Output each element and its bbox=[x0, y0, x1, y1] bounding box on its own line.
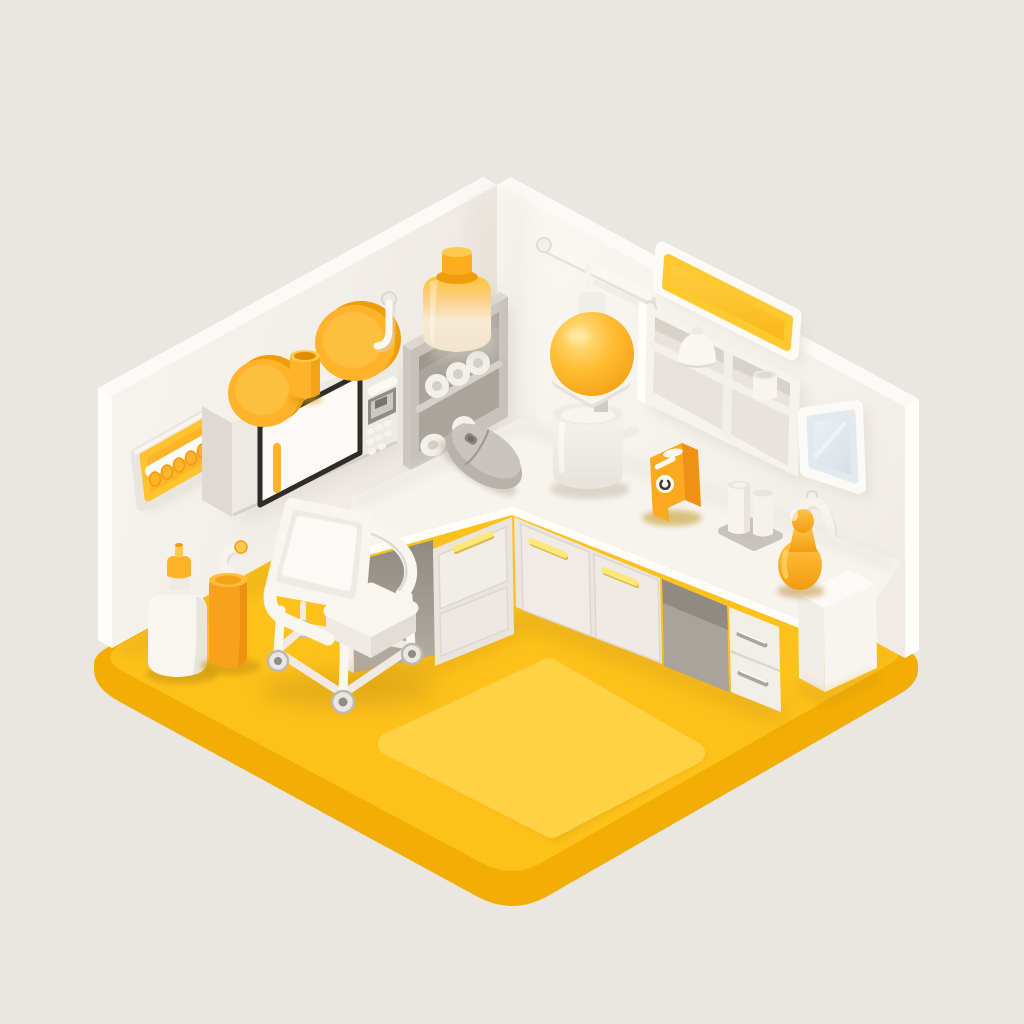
shelf-left-face bbox=[403, 345, 411, 470]
plate-1-inner bbox=[235, 365, 289, 415]
tube-tip bbox=[235, 541, 247, 553]
plate-2-inner bbox=[323, 312, 383, 368]
scene-stage: Isometric miniature room in yellow and w… bbox=[0, 0, 1024, 1024]
left-wall-end-cap bbox=[98, 388, 112, 648]
microwave-left-side bbox=[202, 406, 232, 517]
right-wall-end-cap bbox=[905, 399, 919, 658]
shelf-cup bbox=[753, 371, 777, 401]
pot-body-highlight bbox=[561, 425, 562, 470]
bottle-2 bbox=[753, 490, 773, 537]
mirror-glass bbox=[810, 413, 855, 480]
lamp-sphere bbox=[550, 312, 634, 396]
isometric-room-illustration: Isometric miniature room in yellow and w… bbox=[0, 0, 1024, 1024]
cabinet-left-face bbox=[798, 594, 825, 692]
yellow-cup: yellow cup on shelf bbox=[288, 350, 322, 404]
bottle-cap bbox=[167, 556, 191, 579]
figurine-highlight bbox=[790, 509, 798, 521]
cup-inner bbox=[294, 352, 316, 360]
white-pot: white pot with handle bbox=[550, 403, 634, 499]
bottle-neck bbox=[170, 578, 189, 590]
cup-body-shade bbox=[311, 356, 320, 397]
canister-top-inner bbox=[215, 576, 241, 585]
jar-cap-top bbox=[442, 247, 472, 257]
lamp-highlight bbox=[567, 328, 589, 344]
figurine-body-highlight bbox=[784, 552, 786, 576]
chair-backrest-panel bbox=[286, 520, 353, 587]
bottle-tip-top bbox=[175, 543, 183, 547]
rail-mount-left bbox=[537, 238, 551, 252]
bottle-1 bbox=[728, 481, 750, 534]
box-dial bbox=[656, 475, 674, 493]
box-shadow bbox=[642, 510, 702, 526]
